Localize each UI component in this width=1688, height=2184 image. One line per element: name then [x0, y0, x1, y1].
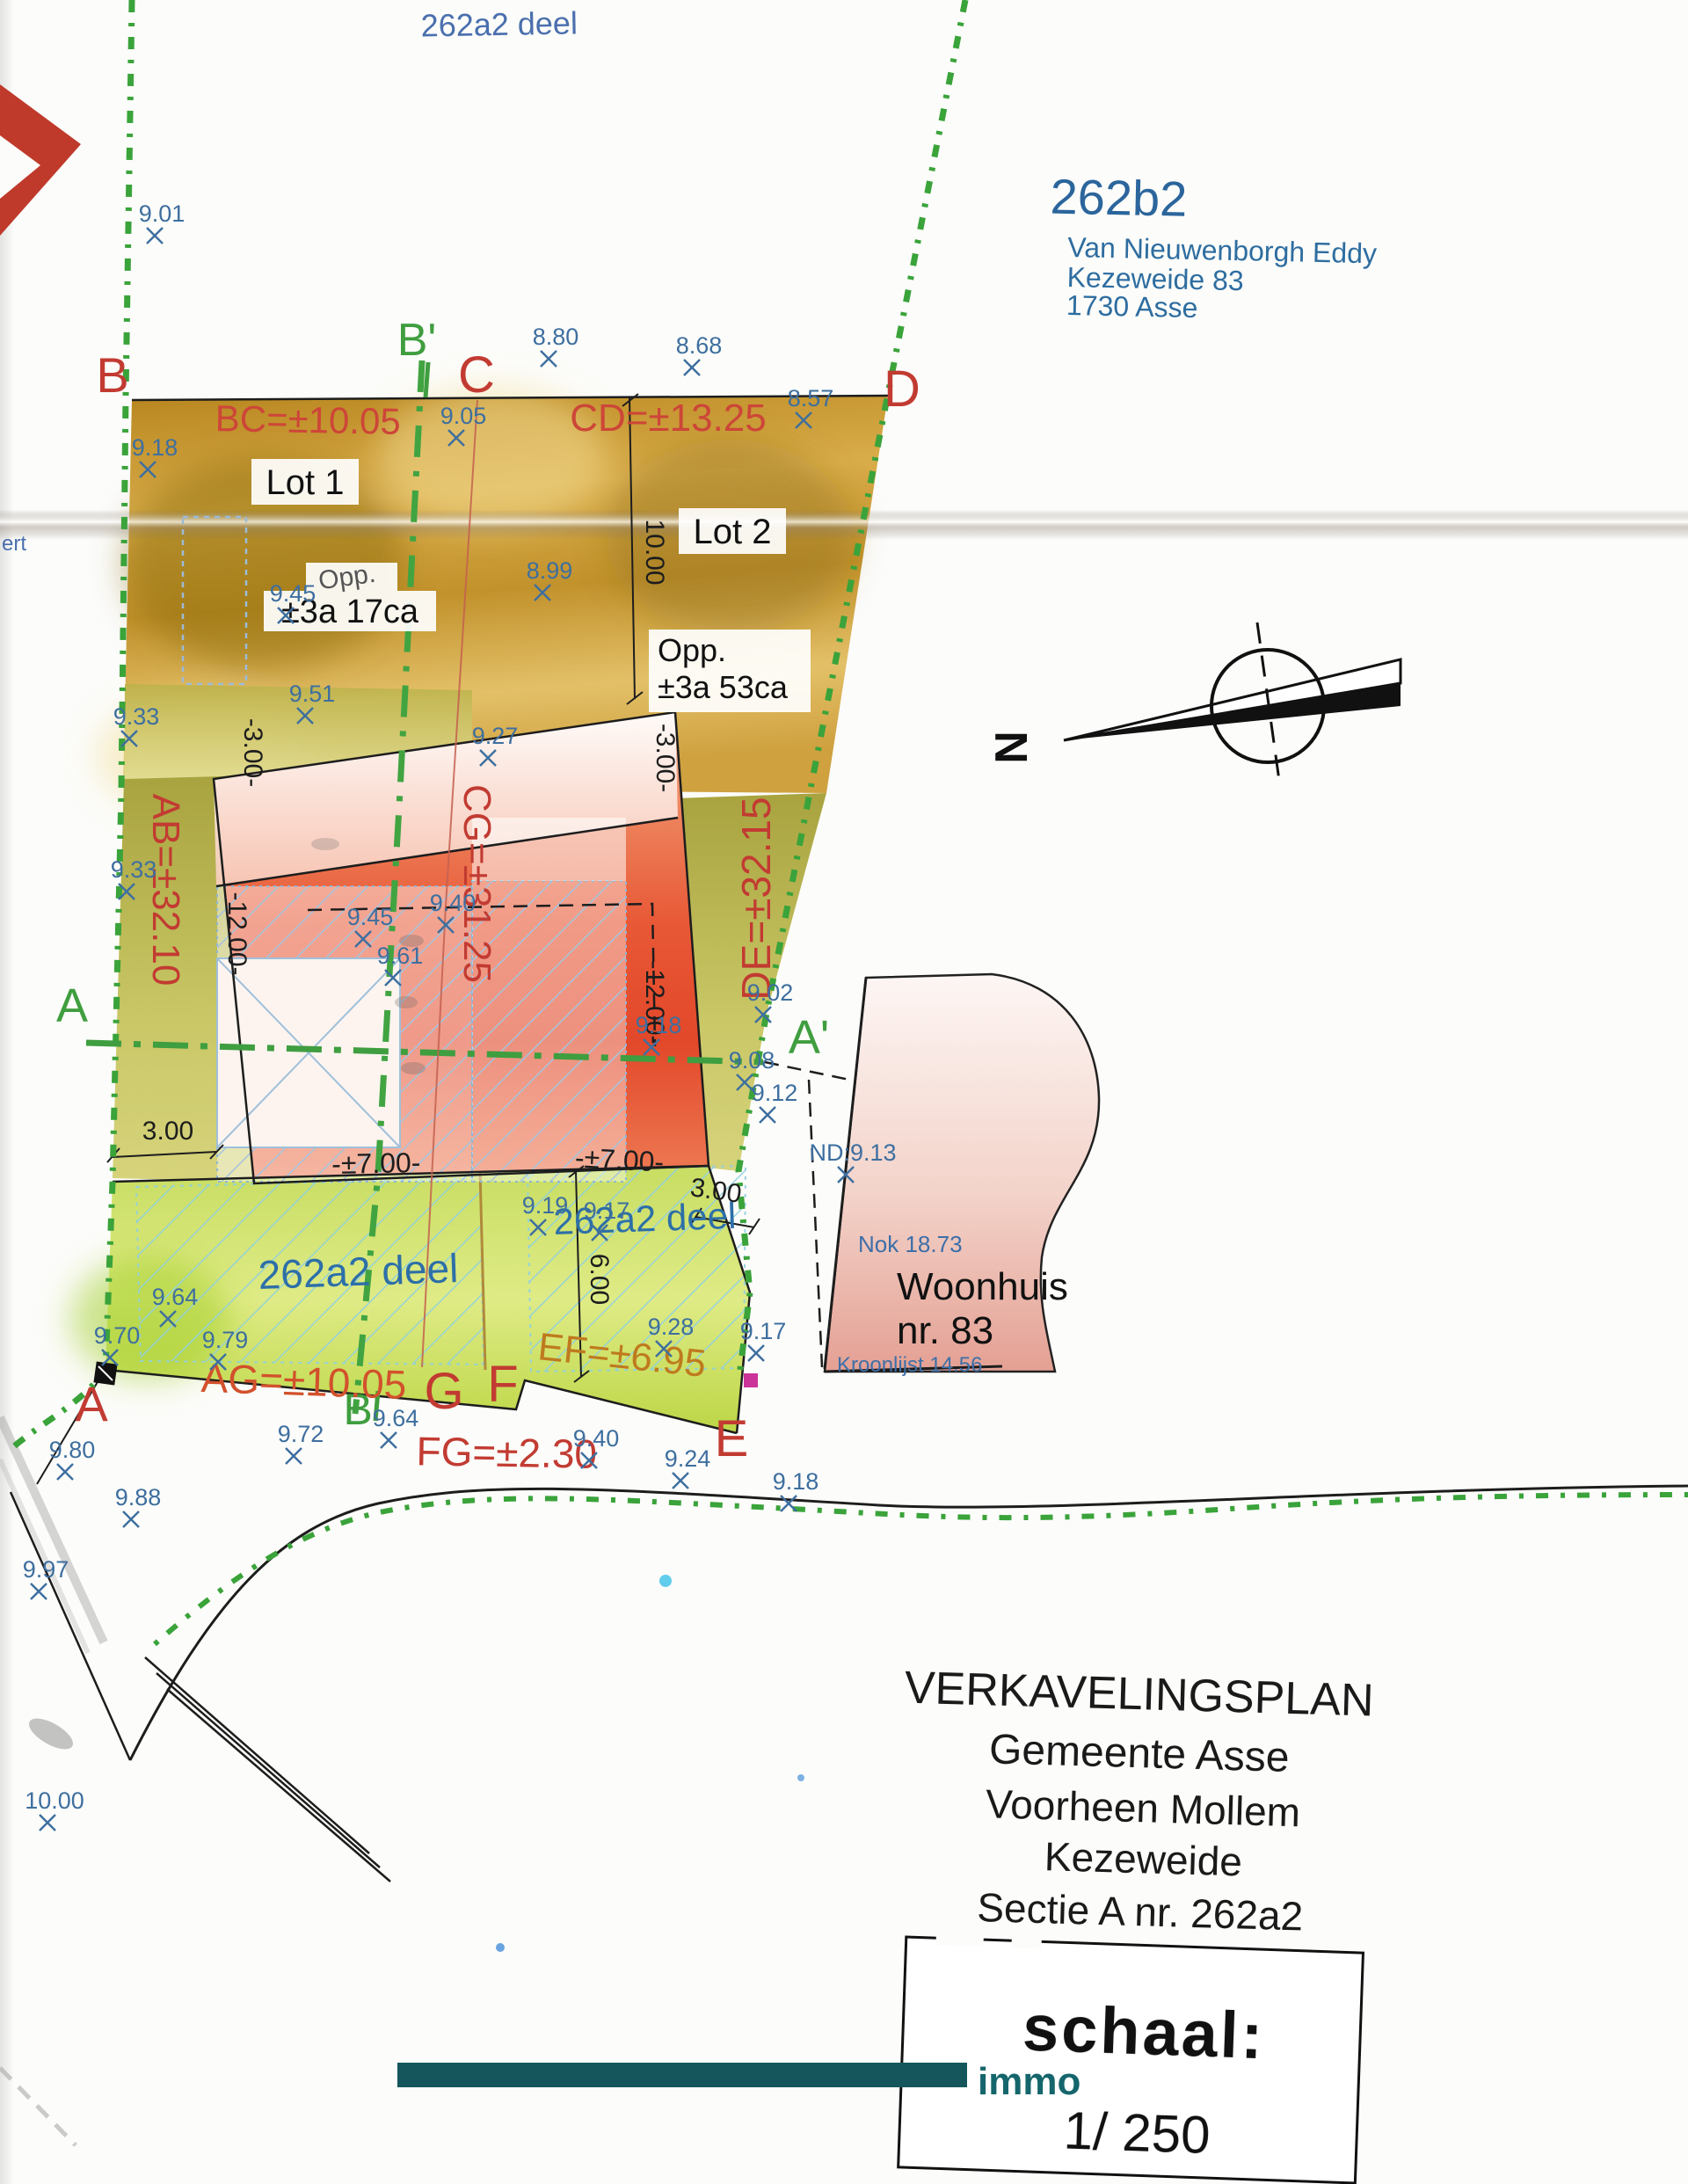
title-line5: Sectie A nr. 262a2: [977, 1884, 1304, 1939]
title-line4: Kezeweide: [1044, 1833, 1242, 1884]
spot-height-value: 9.05: [440, 403, 487, 429]
logo-text: immo: [978, 2060, 1080, 2103]
title-line2: Gemeente Asse: [988, 1726, 1290, 1781]
spot-height-value: 9.70: [94, 1322, 141, 1349]
measurement-label: BC=±10.05: [215, 397, 401, 442]
point-label-a: A: [75, 1376, 108, 1431]
dimension-label: 3.00: [142, 1117, 193, 1146]
spot-height-value: 9.28: [648, 1314, 695, 1340]
north-letter: N: [986, 731, 1037, 764]
measurement-label: CG=±31.25: [455, 784, 498, 983]
measurement-label: AB=±32.10: [144, 794, 187, 986]
spot-height-value: 9.45: [270, 580, 316, 607]
lot1-name: Lot 1: [266, 463, 345, 502]
spot-height-value: 9.18: [773, 1468, 819, 1495]
point-label-g: G: [424, 1363, 463, 1420]
dimension-label: 6.00: [585, 1254, 614, 1305]
dimension-label: -12.00-: [222, 892, 251, 975]
spot-height-value: 9.27: [472, 723, 519, 749]
spot-height-value: 10.00: [25, 1787, 84, 1814]
tick-b-prime-top: [426, 362, 428, 397]
spot-height-value: 9.64: [373, 1405, 419, 1431]
spot-height-value: 9.33: [113, 703, 160, 730]
spot-height-value: 9.64: [152, 1284, 199, 1310]
spot-height-value: 9.18: [132, 434, 178, 461]
spot-height-value: 9.24: [665, 1445, 711, 1472]
dimension-label: 10.00: [640, 519, 669, 585]
scan-crease: [0, 510, 1688, 540]
spot-height-value: 9.33: [111, 856, 157, 883]
house-ridge-label: Nok 18.73: [858, 1231, 963, 1257]
edge-text-fragment: ert: [2, 532, 26, 556]
boundary-marker-pink: [744, 1373, 758, 1387]
spot-height-value: 9.51: [289, 681, 336, 707]
plan-canvas: N 262a2 deel ert 262b2 Van Nieuwenborgh …: [0, 0, 1688, 2184]
lot2-area: ±3a 53ca: [658, 669, 789, 705]
spot-height-value: 9.08: [729, 1047, 775, 1074]
dimension-label: -±7.00-: [574, 1141, 665, 1177]
spot-height-value: 9.40: [430, 890, 477, 916]
point-label-a: A: [56, 979, 88, 1032]
point-label-a-prime: A': [789, 1011, 829, 1064]
house-name: Woonhuis: [897, 1265, 1068, 1308]
neighbor-parcel-id: 262b2: [1050, 169, 1188, 227]
spot-height-value: 8.99: [527, 557, 573, 584]
spot-height-value: 9.18: [636, 1012, 682, 1038]
lot2-name: Lot 2: [694, 513, 772, 551]
page-edge-shadow: [0, 0, 14, 2184]
house-number: nr. 83: [897, 1309, 993, 1352]
point-label-b-prime: B': [397, 315, 437, 366]
point-label-f: F: [487, 1356, 518, 1413]
spot-height-value: 9.88: [115, 1484, 162, 1511]
spot-height-value: 9.97: [23, 1556, 69, 1583]
spot-height-value: 9.19: [522, 1192, 569, 1219]
measurement-label: CD=±13.25: [570, 397, 767, 440]
point-label-d: D: [884, 360, 920, 418]
spot-height-value: 9.80: [49, 1437, 96, 1463]
measurement-label: FG=±2.30: [416, 1428, 597, 1477]
house-cornice-label: Kroonlijst 14.56: [837, 1353, 982, 1377]
spot-height-value: 9.72: [278, 1421, 324, 1447]
spot-height-value: 8.68: [676, 332, 723, 359]
dimension-label: -3.00-: [651, 724, 680, 792]
spot-height-value: ND:9.13: [809, 1139, 896, 1166]
dimension-label: -±7.00-: [331, 1147, 421, 1180]
measurement-label: DE=±32.15: [733, 797, 779, 1000]
spot-height-value: 9.02: [747, 979, 794, 1006]
spot-height-value: 9.17: [740, 1318, 787, 1344]
spot-height-value: 8.80: [533, 324, 579, 350]
point-label-c: C: [458, 346, 495, 404]
neighbor-address2: 1730 Asse: [1066, 289, 1198, 324]
spot-height-value: 9.61: [377, 943, 424, 969]
spot-height-value: 9.45: [347, 904, 394, 930]
measurement-label: AG=±10.05: [200, 1355, 407, 1408]
spot-height-value: 8.57: [788, 385, 834, 411]
dimension-label: -3.00-: [238, 718, 267, 787]
spot-height-value: 9.79: [202, 1327, 249, 1353]
scale-value: 1/ 250: [1063, 2100, 1211, 2165]
parcel-top-label: 262a2 deel: [420, 4, 578, 43]
scale-box: schaal: 1/ 250: [899, 1930, 1364, 2183]
point-label-b: B: [96, 347, 128, 403]
parcel-bottom-left-label: 262a2 deel: [258, 1245, 459, 1298]
spot-height-value: 9.12: [752, 1080, 798, 1106]
point-label-e: E: [715, 1410, 749, 1467]
scanned-plan-page: N 262a2 deel ert 262b2 Van Nieuwenborgh …: [0, 0, 1688, 2184]
title-line3: Voorheen Mollem: [985, 1780, 1300, 1835]
spot-height-value: 9.17: [584, 1198, 630, 1224]
logo-bar: [397, 2063, 967, 2087]
lot2-opp-label: Opp.: [658, 632, 726, 668]
spot-height-value: 9.40: [573, 1425, 620, 1452]
spot-height-value: 9.01: [139, 200, 186, 227]
